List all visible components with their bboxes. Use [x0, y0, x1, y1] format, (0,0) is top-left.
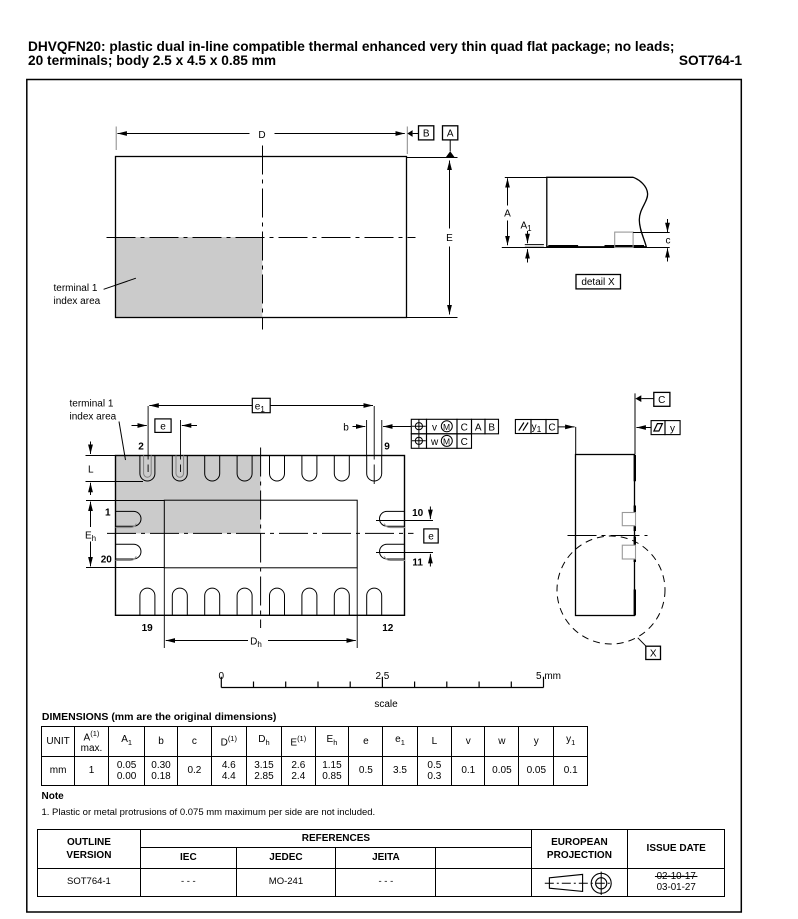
svg-text:11: 11: [412, 558, 423, 569]
svg-text:M: M: [443, 422, 450, 432]
svg-text:Eh: Eh: [85, 531, 96, 544]
svg-text:A: A: [447, 129, 454, 140]
svg-text:A: A: [504, 209, 511, 220]
svg-text:index area: index area: [54, 296, 101, 307]
svg-text:A1: A1: [521, 221, 533, 234]
svg-text:9: 9: [384, 441, 390, 452]
svg-text:e: e: [160, 421, 166, 432]
svg-text:C: C: [548, 422, 555, 433]
svg-text:2.5: 2.5: [375, 671, 389, 682]
svg-text:2: 2: [138, 441, 144, 452]
svg-text:0: 0: [219, 671, 225, 682]
svg-text:C: C: [461, 422, 468, 433]
svg-text:e1: e1: [255, 401, 266, 414]
svg-text:C: C: [461, 437, 468, 448]
svg-text:v: v: [432, 422, 437, 433]
svg-text:terminal 1: terminal 1: [70, 399, 114, 410]
svg-text:M: M: [443, 437, 450, 447]
svg-text:e: e: [428, 532, 434, 543]
svg-text:20: 20: [101, 555, 113, 566]
svg-text:scale: scale: [374, 699, 398, 710]
svg-text:index area: index area: [70, 412, 117, 423]
svg-text:y1: y1: [532, 422, 542, 434]
svg-text:12: 12: [382, 623, 394, 634]
svg-text:19: 19: [142, 623, 154, 634]
svg-text:b: b: [343, 423, 349, 434]
svg-text:1: 1: [105, 508, 111, 519]
svg-text:5 mm: 5 mm: [536, 671, 561, 682]
svg-text:E: E: [446, 233, 453, 244]
svg-text:10: 10: [412, 508, 424, 519]
svg-text:L: L: [88, 465, 94, 476]
svg-text:B: B: [488, 422, 495, 433]
svg-text:w: w: [430, 437, 439, 448]
svg-text:A: A: [475, 422, 482, 433]
svg-text:C: C: [658, 395, 665, 406]
svg-text:y: y: [670, 423, 675, 434]
svg-text:c: c: [666, 236, 671, 247]
svg-text:X: X: [650, 649, 657, 660]
svg-text:terminal 1: terminal 1: [54, 283, 98, 294]
svg-text:D: D: [258, 130, 265, 141]
svg-text:B: B: [423, 129, 430, 140]
svg-text:detail X: detail X: [581, 277, 615, 288]
svg-text:Dh: Dh: [250, 637, 262, 650]
